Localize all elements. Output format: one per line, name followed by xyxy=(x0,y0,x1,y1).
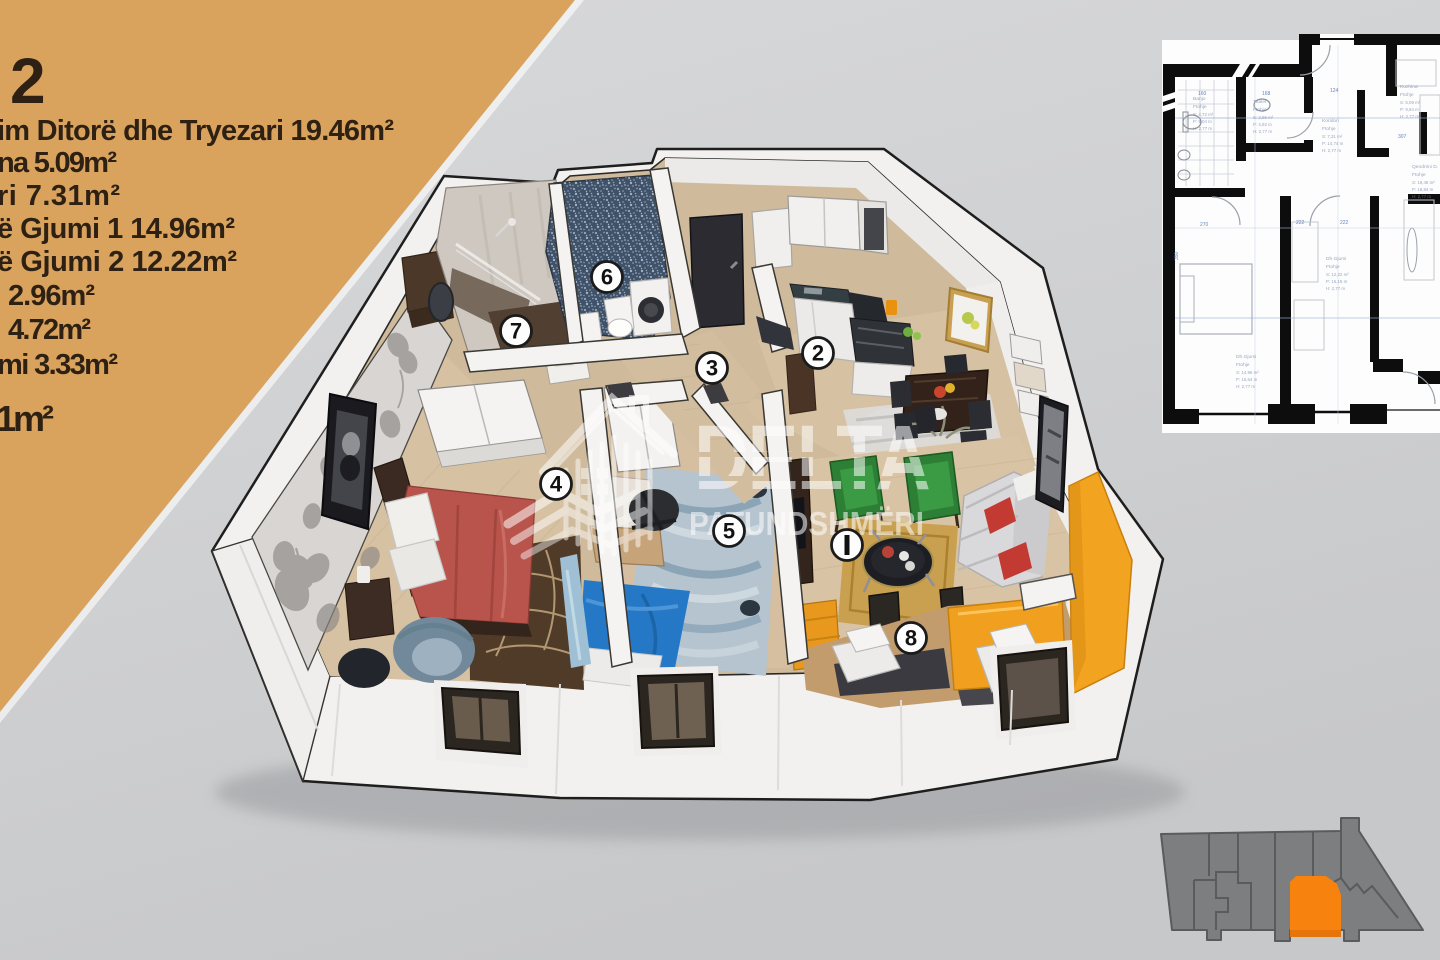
svg-text:222: 222 xyxy=(1296,220,1305,226)
svg-text:H: 2,77 m: H: 2,77 m xyxy=(1326,286,1345,291)
svg-text:P: 4,92 m: P: 4,92 m xyxy=(1253,122,1272,127)
svg-text:H: 2,77 m: H: 2,77 m xyxy=(1412,194,1431,199)
svg-text:Ftohje: Ftohje xyxy=(1193,104,1207,110)
svg-text:2: 2 xyxy=(812,341,824,366)
svg-text:Ftohje: Ftohje xyxy=(1326,264,1340,270)
svg-text:P: 16,15 m: P: 16,15 m xyxy=(1326,279,1348,284)
svg-text:Ftohje: Ftohje xyxy=(1400,92,1414,98)
svg-text:8: 8 xyxy=(905,626,917,651)
svg-text:7: 7 xyxy=(510,319,522,344)
svg-text:Dh.Gjumi: Dh.Gjumi xyxy=(1326,256,1346,262)
svg-text:H: 2,77 m: H: 2,77 m xyxy=(1193,126,1212,131)
svg-text:ë Gjumi 2 12.22m²: ë Gjumi 2 12.22m² xyxy=(0,246,237,278)
svg-text:Ftohje: Ftohje xyxy=(1236,362,1250,368)
svg-text:270: 270 xyxy=(1200,222,1209,228)
svg-text:im Ditorë dhe Tryezari 19.46m: im Ditorë dhe Tryezari 19.46m² xyxy=(0,115,394,147)
svg-text:168: 168 xyxy=(1262,91,1271,97)
svg-text:4: 4 xyxy=(550,472,563,497)
svg-text:Tualet: Tualet xyxy=(1253,99,1267,105)
svg-text:S: 12,22 m²: S: 12,22 m² xyxy=(1326,272,1349,277)
svg-text:3: 3 xyxy=(706,356,718,381)
svg-text:P: 14,74 m: P: 14,74 m xyxy=(1322,141,1344,146)
svg-text:S: 4,72 m²: S: 4,72 m² xyxy=(1193,112,1214,117)
svg-text:Dh.Gjumi: Dh.Gjumi xyxy=(1236,354,1256,360)
svg-text:2: 2 xyxy=(10,45,46,117)
svg-text:350: 350 xyxy=(1174,251,1180,260)
svg-text:P: 9,84 m: P: 9,84 m xyxy=(1400,107,1419,112)
svg-text:Ftohje: Ftohje xyxy=(1412,172,1426,178)
svg-text:mi 3.33m²: mi 3.33m² xyxy=(0,349,118,381)
svg-text:S: 7,31 m²: S: 7,31 m² xyxy=(1322,134,1343,139)
svg-text:H: 2,77 m: H: 2,77 m xyxy=(1322,148,1341,153)
svg-text:Koridori: Koridori xyxy=(1322,118,1339,124)
svg-text:H: 2,77 m: H: 2,77 m xyxy=(1236,384,1255,389)
svg-text:S: 5,09 m²: S: 5,09 m² xyxy=(1400,100,1421,105)
svg-text:na 5.09m²: na 5.09m² xyxy=(0,147,117,179)
svg-text:S: 2,96 m²: S: 2,96 m² xyxy=(1253,115,1274,120)
svg-text:307: 307 xyxy=(1398,134,1407,140)
svg-text:4.72m²: 4.72m² xyxy=(8,314,91,346)
svg-text:2.96m²: 2.96m² xyxy=(8,280,95,312)
svg-text:Ftohje: Ftohje xyxy=(1322,126,1336,132)
svg-text:Qendrimi D.: Qendrimi D. xyxy=(1412,164,1438,170)
svg-text:5: 5 xyxy=(723,519,735,544)
svg-text:P: 16,64 m: P: 16,64 m xyxy=(1236,377,1258,382)
svg-text:H: 2,77 m: H: 2,77 m xyxy=(1253,129,1272,134)
svg-text:124: 124 xyxy=(1330,88,1339,94)
svg-text:S: 19,46 m²: S: 19,46 m² xyxy=(1412,180,1435,185)
svg-text:ri 7.31m²: ri 7.31m² xyxy=(0,180,120,212)
svg-text:P: 9,04 m: P: 9,04 m xyxy=(1193,119,1212,124)
svg-text:ë Gjumi 1 14.96m²: ë Gjumi 1 14.96m² xyxy=(0,213,235,245)
svg-text:H: 2,77 m: H: 2,77 m xyxy=(1400,114,1419,119)
svg-text:DELTA: DELTA xyxy=(694,407,929,509)
svg-text:1m²: 1m² xyxy=(0,398,54,439)
svg-text:160: 160 xyxy=(1198,91,1207,97)
svg-text:222: 222 xyxy=(1340,220,1349,226)
svg-text:6: 6 xyxy=(601,265,613,290)
svg-text:Ftohje: Ftohje xyxy=(1253,107,1267,113)
svg-text:P: 18,84 m: P: 18,84 m xyxy=(1412,187,1434,192)
svg-text:Kuzhina: Kuzhina xyxy=(1400,84,1418,90)
svg-text:S: 14,96 m²: S: 14,96 m² xyxy=(1236,370,1259,375)
